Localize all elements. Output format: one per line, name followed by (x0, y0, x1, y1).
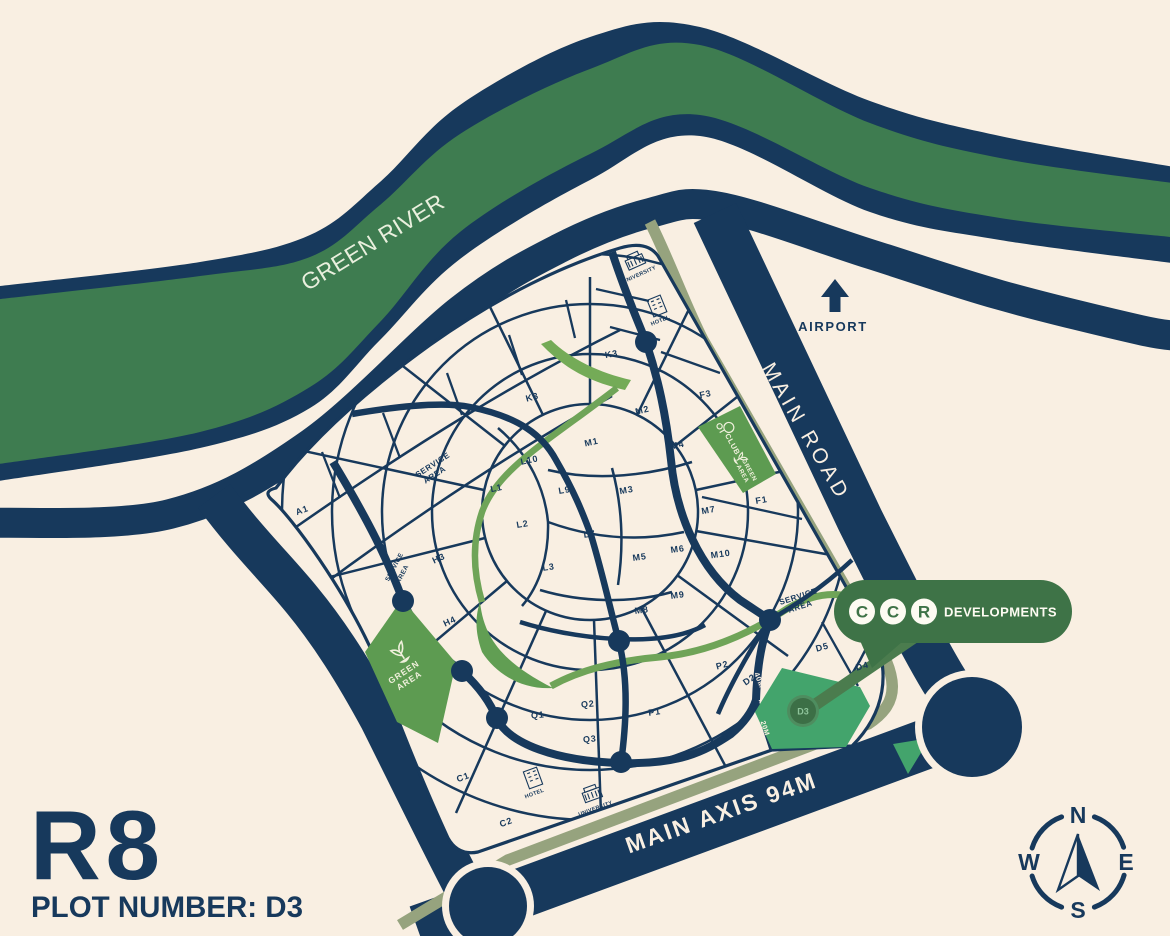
svg-text:D3: D3 (797, 707, 809, 717)
svg-text:R: R (918, 603, 930, 622)
svg-text:L2: L2 (516, 518, 530, 530)
svg-text:C: C (856, 603, 868, 622)
svg-text:M9: M9 (670, 589, 685, 601)
svg-text:L3: L3 (542, 561, 555, 573)
svg-text:C: C (887, 603, 899, 622)
svg-text:M5: M5 (632, 551, 647, 563)
svg-text:DEVELOPMENTS: DEVELOPMENTS (944, 605, 1057, 620)
svg-text:F1: F1 (755, 494, 769, 506)
svg-text:Q3: Q3 (583, 733, 597, 744)
svg-text:E: E (1118, 849, 1133, 875)
svg-text:W: W (1018, 849, 1040, 875)
svg-text:Q1: Q1 (531, 709, 545, 720)
svg-text:M6: M6 (670, 543, 685, 555)
svg-text:L9: L9 (558, 484, 572, 496)
svg-text:P1: P1 (648, 706, 662, 718)
svg-text:M8: M8 (634, 604, 649, 616)
svg-text:PLOT NUMBER: D3: PLOT NUMBER: D3 (31, 891, 303, 924)
svg-text:S: S (1070, 897, 1085, 923)
svg-text:Q2: Q2 (581, 698, 595, 709)
svg-text:L7: L7 (583, 528, 596, 540)
svg-text:AIRPORT: AIRPORT (798, 319, 868, 334)
svg-text:R8: R8 (30, 790, 160, 900)
svg-text:N: N (1070, 802, 1087, 828)
